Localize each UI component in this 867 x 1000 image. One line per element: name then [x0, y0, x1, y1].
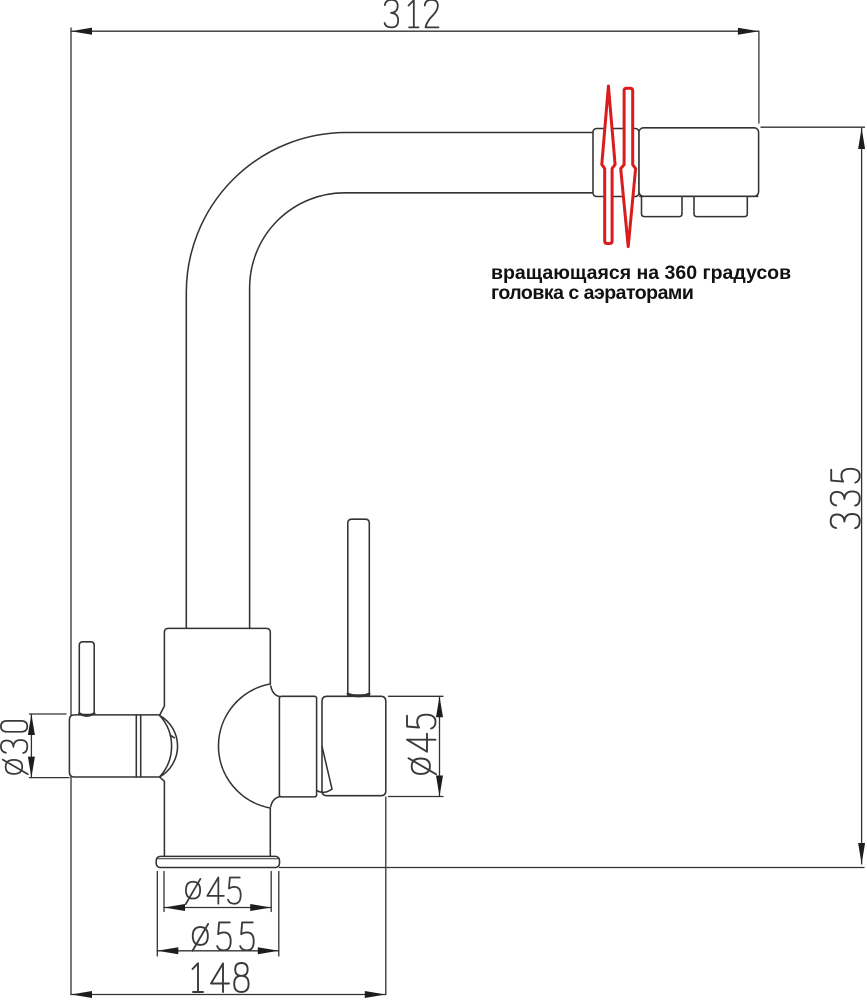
svg-text:головка с аэраторами: головка с аэраторами — [491, 282, 693, 304]
svg-text:вращающаяся на 360 градусов: вращающаяся на 360 градусов — [491, 262, 791, 284]
